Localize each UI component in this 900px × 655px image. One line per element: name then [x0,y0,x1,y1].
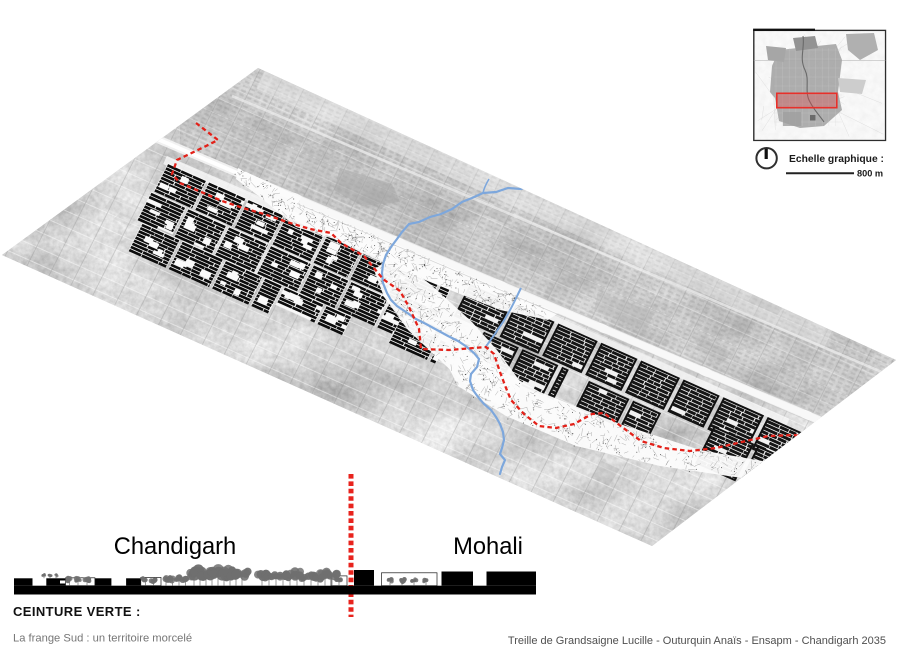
svg-text:CEINTURE VERTE :: CEINTURE VERTE : [13,604,141,619]
svg-text:Echelle graphique :: Echelle graphique : [789,154,884,165]
svg-text:Treille de Grandsaigne Lucille: Treille de Grandsaigne Lucille - Outurqu… [508,635,886,647]
svg-text:800 m: 800 m [857,168,883,178]
svg-text:Chandigarh: Chandigarh [114,534,236,560]
svg-text:La frange Sud : un territoire: La frange Sud : un territoire morcelé [13,633,192,645]
svg-text:Mohali: Mohali [453,534,523,560]
